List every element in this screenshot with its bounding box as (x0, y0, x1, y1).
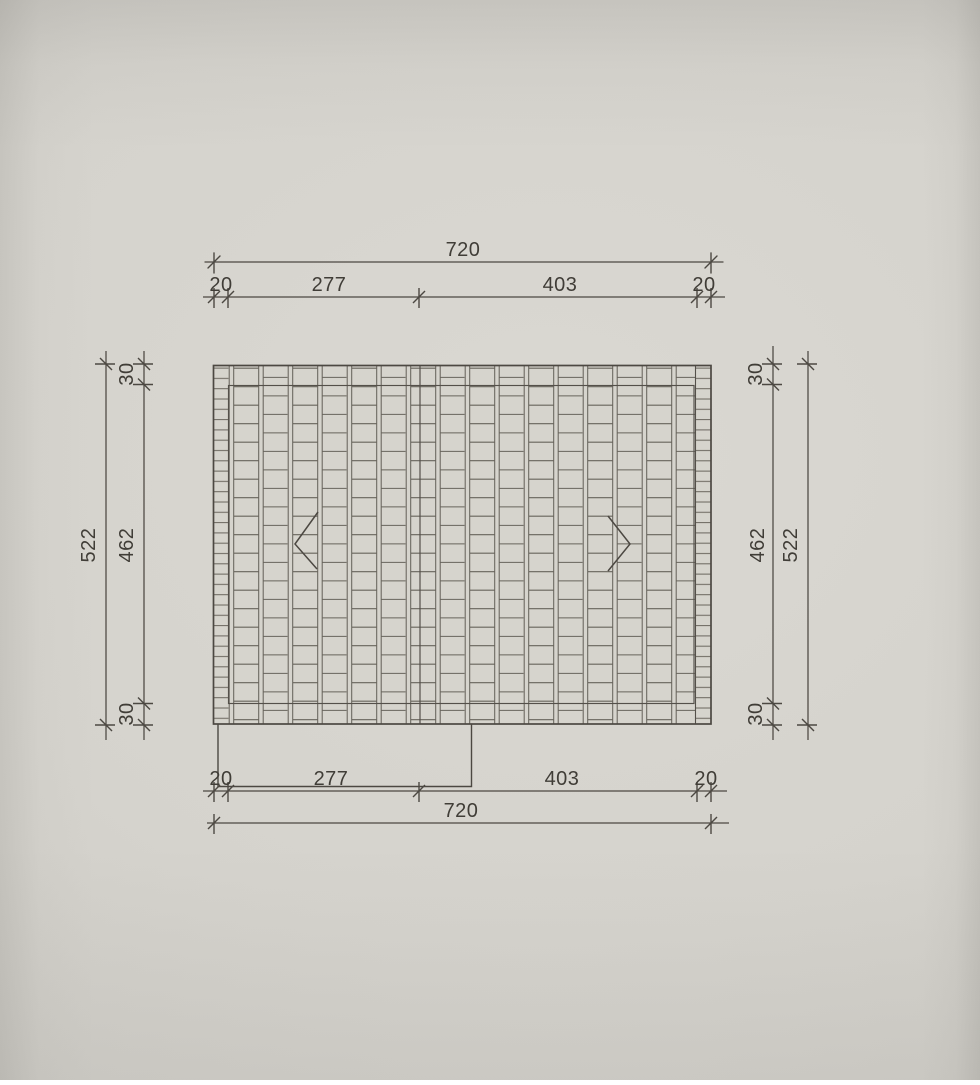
dimension-right-total: 522 (780, 351, 817, 740)
dim-label-bottom-total: 720 (444, 800, 479, 822)
roof-plan (214, 366, 712, 787)
dimension-left-total: 522 (78, 351, 115, 740)
dimension-top-segments: 20 277 403 20 (203, 274, 725, 308)
dim-label-left-total: 522 (78, 528, 100, 563)
dimension-left-segments: 30 462 30 (116, 351, 153, 740)
paper-sheet: 720 20 277 403 20 20 277 403 20 (0, 0, 980, 1080)
dim-label-bottom-seg-0: 20 (209, 768, 232, 790)
dim-label-top-total: 720 (446, 239, 481, 261)
dim-label-bottom-seg-2: 403 (545, 768, 580, 790)
verge-strip-left-tiles (214, 366, 229, 725)
dimension-bottom-segments: 20 277 403 20 (203, 768, 727, 802)
dimension-right-segments: 30 462 30 (745, 346, 782, 740)
roof-plan-drawing: 720 20 277 403 20 20 277 403 20 (0, 0, 980, 1080)
dim-label-right-edge-bottom: 30 (745, 702, 767, 725)
dim-label-bottom-seg-1: 277 (314, 768, 349, 790)
dim-label-right-total: 522 (780, 528, 802, 563)
verge-strip-right-tiles (696, 366, 712, 725)
roof-tile-pattern (214, 366, 712, 725)
dim-label-right-inner: 462 (747, 528, 769, 563)
dim-label-left-inner: 462 (116, 528, 138, 563)
dimension-top-total: 720 (205, 239, 723, 273)
dim-label-right-edge-top: 30 (745, 362, 767, 385)
dim-label-left-edge-bottom: 30 (116, 702, 138, 725)
dimension-bottom-total: 720 (207, 800, 729, 834)
dim-label-bottom-seg-3: 20 (694, 768, 717, 790)
dim-label-top-seg-2: 403 (543, 274, 578, 296)
dim-label-top-seg-0: 20 (209, 274, 232, 296)
dim-label-top-seg-3: 20 (692, 274, 715, 296)
dim-label-left-edge-top: 30 (116, 362, 138, 385)
dim-label-top-seg-1: 277 (312, 274, 347, 296)
